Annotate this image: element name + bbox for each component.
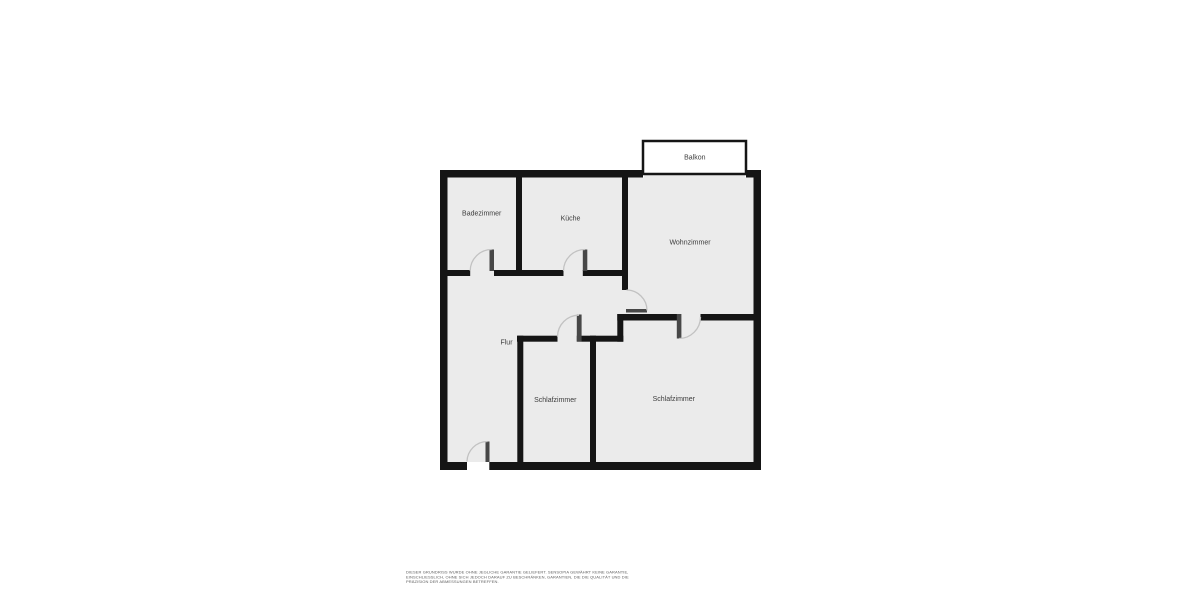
wall-segment — [577, 336, 624, 342]
wall-outer-top-left — [440, 170, 643, 178]
floor-plan-canvas: Balkon — [0, 0, 1200, 600]
door-leaf — [626, 309, 647, 313]
wall-segment — [583, 270, 628, 276]
room-label-schlafzimmer-rechts: Schlafzimmer — [653, 396, 696, 403]
wall-segment — [522, 270, 564, 276]
room-label-schlafzimmer-mitte: Schlafzimmer — [534, 397, 577, 404]
door-leaf — [583, 250, 588, 272]
disclaimer-line-3: PRÄZISION DER ABMESSUNGEN BETREFFEN. — [406, 579, 499, 584]
room-label-wohnzimmer: Wohnzimmer — [669, 240, 711, 247]
door-leaf — [577, 315, 582, 342]
wall-outer-left — [440, 170, 448, 470]
wall-segment — [494, 270, 516, 276]
door-leaf — [490, 250, 495, 272]
wall-segment — [701, 314, 754, 321]
wall-schlafzimmer-divider — [590, 336, 596, 462]
wall-kueche-wohnzimmer — [622, 170, 628, 290]
wall-bad-kueche — [516, 177, 522, 276]
room-label-balkon: Balkon — [684, 155, 706, 162]
wall-outer-right — [754, 170, 762, 470]
wall-outer-bottom-right — [489, 462, 761, 470]
wall-segment — [448, 270, 471, 276]
floor-plan-page: Balkon — [0, 0, 1200, 600]
wall-outer-bottom-left — [440, 462, 467, 470]
room-label-flur: Flur — [500, 340, 513, 347]
door-leaf-entrance — [486, 442, 490, 463]
disclaimer: DIESER GRUNDRISS WURDE OHNE JEGLICHE GAR… — [406, 570, 629, 585]
door-leaf — [677, 314, 682, 339]
wall-flur-schlafzimmer — [517, 336, 523, 462]
balcony: Balkon — [643, 141, 746, 174]
room-label-badezimmer: Badezimmer — [462, 211, 502, 218]
wall-segment — [617, 314, 677, 321]
room-label-kueche: Küche — [561, 216, 581, 223]
